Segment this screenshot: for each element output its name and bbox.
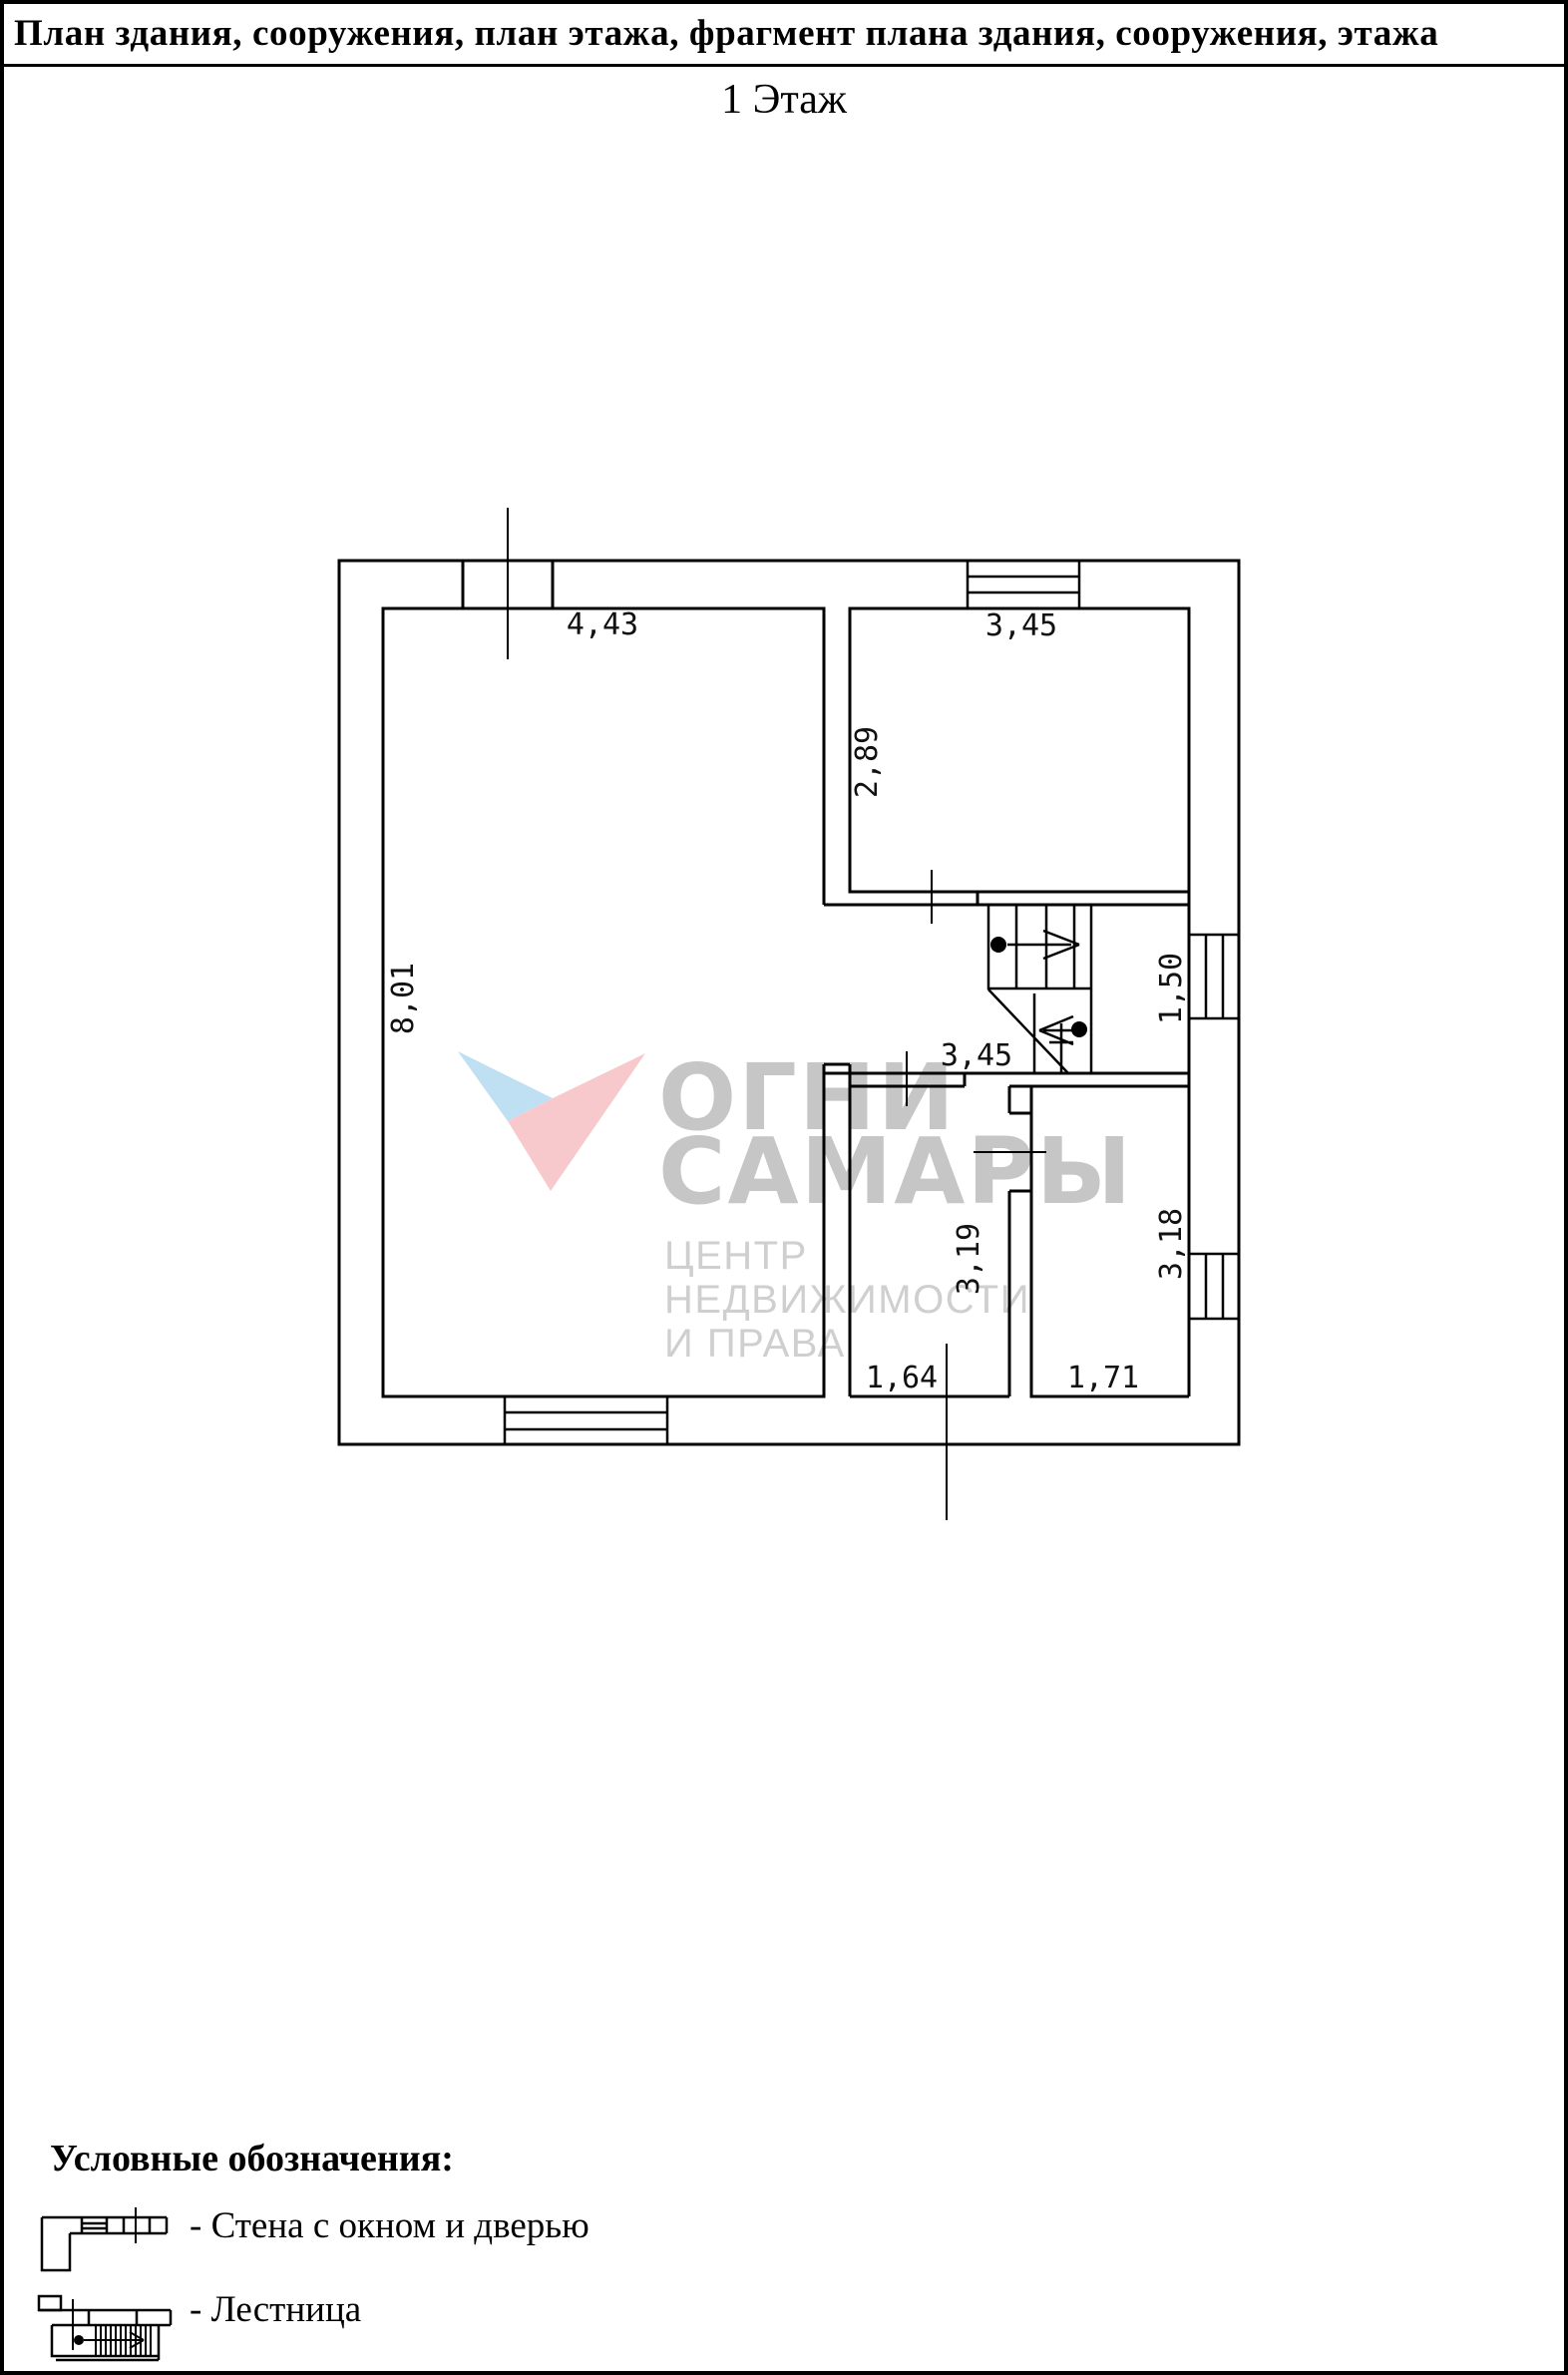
watermark-logo-checkmark-icon <box>458 1051 645 1191</box>
dim-top-room-width: 3,45 <box>985 608 1057 643</box>
watermark-tagline-line3: И ПРАВА <box>664 1322 846 1366</box>
room-top-right <box>850 608 1189 892</box>
dim-room-b-width: 1,71 <box>1067 1361 1139 1395</box>
dim-left-height: 8,01 <box>386 963 421 1034</box>
watermark-brand-line2: САМАРЫ <box>658 1118 1133 1225</box>
hall-top-wall <box>824 892 1189 905</box>
legend-stair-dot <box>74 2335 84 2345</box>
legend-heading: Условные обозначения: <box>50 2137 454 2180</box>
stair-direction-arrow-down <box>1039 1016 1075 1044</box>
dim-top-room-height: 2,89 <box>850 726 885 798</box>
legend-wall-window-door-icon <box>42 2207 167 2270</box>
window-symbol-bottom <box>505 1396 667 1444</box>
window-symbol-top <box>968 561 1079 608</box>
legend-item-wall-window-door-label: - Стена с окном и дверью <box>190 2204 589 2247</box>
legend-stair-arrow <box>84 2332 144 2348</box>
floor-plan-drawing: ОГНИ САМАРЫ ЦЕНТР НЕДВИЖИМОСТИ И ПРАВА <box>4 4 1568 2375</box>
document-page: План здания, сооружения, план этажа, фра… <box>0 0 1568 2375</box>
dim-room-a-width: 1,64 <box>866 1361 938 1395</box>
stair-start-dot-upper <box>990 937 1006 953</box>
axis-ticks <box>508 508 1046 1520</box>
watermark-text: ОГНИ САМАРЫ ЦЕНТР НЕДВИЖИМОСТИ И ПРАВА <box>658 1044 1133 1366</box>
watermark-tagline-line1: ЦЕНТР <box>664 1234 808 1278</box>
stair-treads-upper <box>1016 905 1074 989</box>
window-symbol-right-upper <box>1189 935 1239 1018</box>
stair-direction-arrow-up <box>1007 931 1079 959</box>
dim-hall-width: 3,45 <box>941 1038 1012 1073</box>
logo-pink-triangle <box>508 1053 645 1191</box>
dim-top-door: 4,43 <box>567 607 638 642</box>
dim-landing-width: 1,50 <box>1154 953 1189 1024</box>
dim-room-a-height: 3,19 <box>952 1223 986 1295</box>
window-symbol-right-lower <box>1189 1254 1239 1319</box>
dim-room-b-height: 3,18 <box>1154 1208 1189 1280</box>
legend-item-staircase-label: - Лестница <box>190 2288 361 2331</box>
legend-staircase-icon <box>39 2296 171 2360</box>
